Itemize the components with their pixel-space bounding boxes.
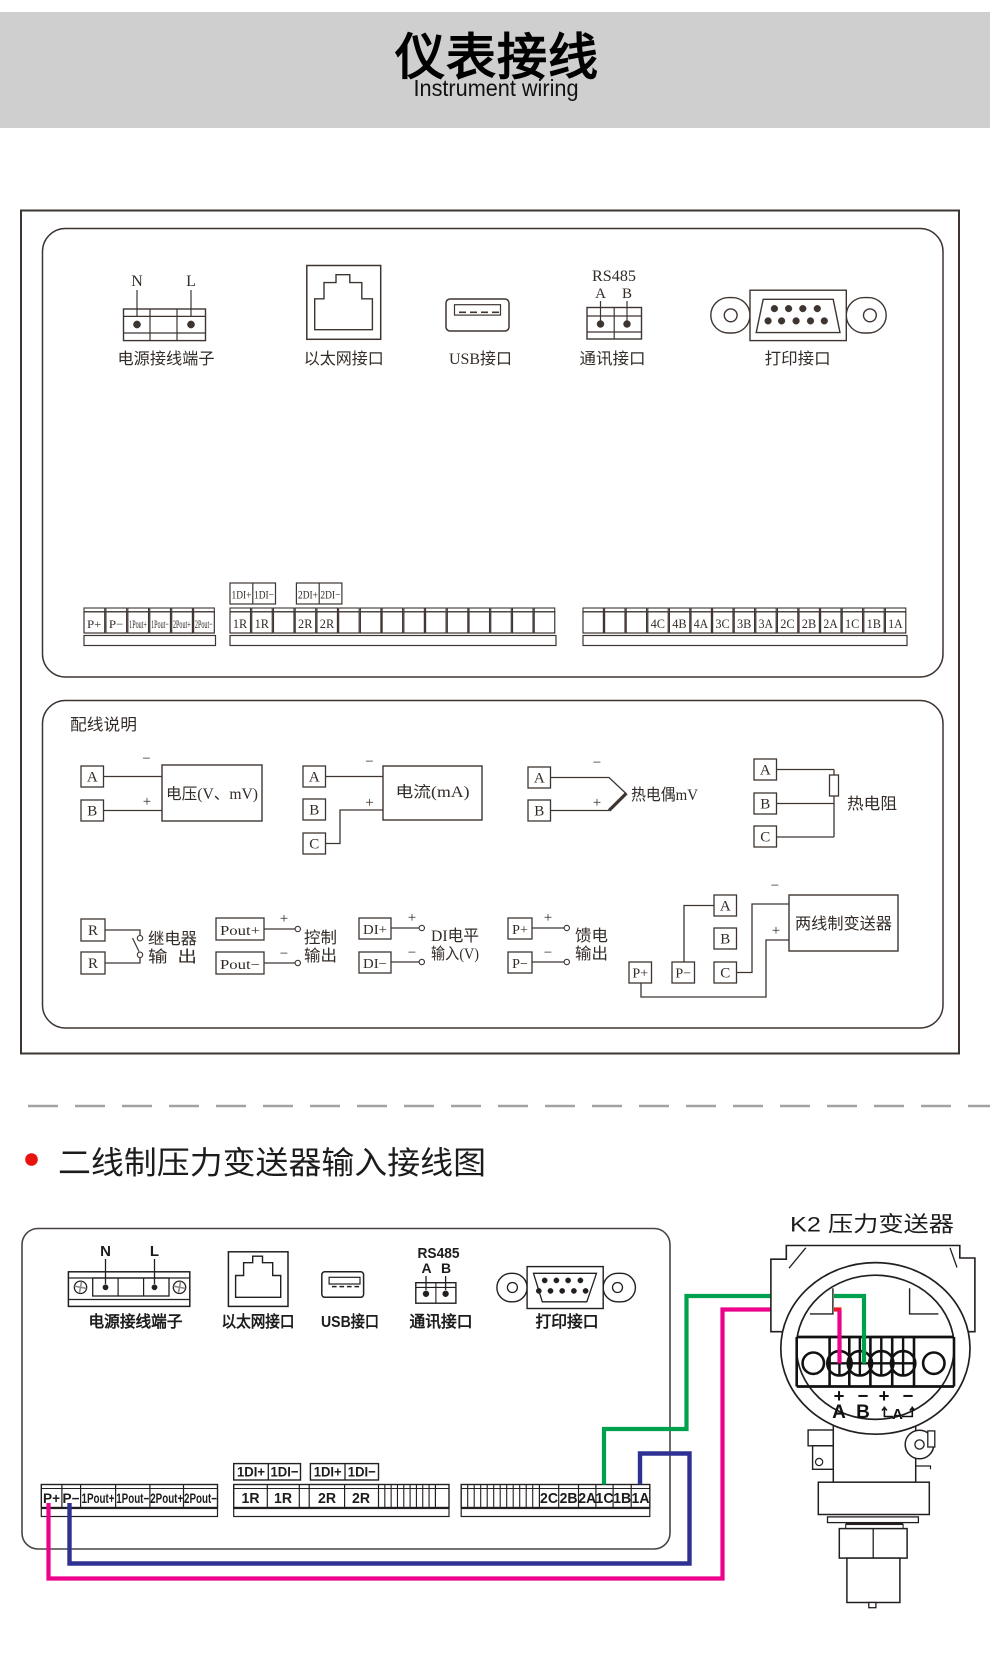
svg-text:以太网接口: 以太网接口 [304,350,384,368]
svg-text:C: C [309,837,319,853]
svg-text:1DI+: 1DI+ [237,1464,265,1480]
svg-text:DI+: DI+ [363,923,387,938]
svg-text:B: B [87,804,97,820]
svg-text:R: R [88,956,98,972]
svg-text:USB接口: USB接口 [321,1312,379,1331]
svg-text:输入(V): 输入(V) [431,945,479,963]
svg-text:4B: 4B [672,617,686,631]
svg-text:P−: P− [109,617,124,631]
svg-text:A: A [760,763,771,779]
svg-text:−: − [544,945,552,961]
svg-text:2Pout−: 2Pout− [195,617,213,631]
svg-text:热电阻: 热电阻 [847,795,897,813]
svg-text:DI−: DI− [363,957,387,972]
svg-text:DI电平: DI电平 [431,927,479,945]
svg-text:+: + [408,910,416,926]
svg-text:1Pout+: 1Pout+ [129,617,147,631]
svg-text:以太网接口: 以太网接口 [222,1312,295,1331]
svg-text:控制: 控制 [304,929,337,947]
svg-text:C: C [720,966,730,982]
svg-text:3C: 3C [715,617,729,631]
svg-text:电源接线端子: 电源接线端子 [118,350,215,368]
svg-text:1DI−: 1DI− [348,1464,376,1480]
svg-text:1A: 1A [632,1490,650,1507]
svg-text:1DI+: 1DI+ [232,590,252,602]
svg-text:B: B [309,803,319,819]
svg-text:−: − [280,946,288,962]
svg-text:电源接线端子: 电源接线端子 [89,1312,183,1331]
svg-text:B: B [534,804,544,820]
svg-text:通讯接口: 通讯接口 [410,1312,473,1331]
svg-text:1C: 1C [845,617,859,631]
svg-text:−: − [142,751,150,767]
svg-text:2R: 2R [318,1490,336,1507]
svg-text:−: − [365,754,373,770]
svg-text:热电偶mV: 热电偶mV [631,786,698,804]
svg-text:2R: 2R [320,617,335,631]
svg-text:P+: P+ [87,617,102,631]
svg-text:2Pout+: 2Pout+ [150,1491,183,1506]
svg-text:2B: 2B [802,617,816,631]
svg-text:电流(mA): 电流(mA) [396,783,470,801]
svg-text:+: + [365,795,373,811]
svg-text:B: B [760,797,770,813]
svg-text:N: N [131,273,143,290]
svg-text:A: A [87,770,98,786]
svg-text:−: − [903,1385,914,1406]
svg-text:P−: P− [675,967,691,982]
svg-text:1Pout+: 1Pout+ [82,1491,115,1506]
svg-text:P−: P− [512,957,528,972]
svg-text:R: R [88,923,98,939]
svg-text:−: − [408,945,416,961]
svg-text:2C: 2C [780,617,794,631]
svg-text:1B: 1B [613,1490,631,1507]
svg-text:K2 压力变送器: K2 压力变送器 [790,1213,954,1237]
svg-text:1DI−: 1DI− [271,1464,299,1480]
svg-text:4C: 4C [651,617,665,631]
svg-text:+: + [143,794,151,810]
svg-text:+: + [593,795,601,811]
svg-text:3A: 3A [759,617,773,631]
svg-text:2DI−: 2DI− [320,590,340,602]
svg-text:1R: 1R [274,1490,292,1507]
svg-text:输出: 输出 [575,945,608,963]
svg-text:C: C [760,830,770,846]
svg-text:2DI+: 2DI+ [298,590,318,602]
svg-text:继电器: 继电器 [148,930,197,948]
svg-text:+: + [772,923,780,939]
svg-text:2R: 2R [352,1490,370,1507]
svg-text:P+: P+ [632,967,648,982]
svg-text:两线制变送器: 两线制变送器 [795,915,892,933]
svg-text:B: B [856,1402,870,1423]
svg-text:2R: 2R [298,617,313,631]
svg-text:L: L [150,1243,159,1260]
svg-text:1C: 1C [596,1490,614,1507]
svg-text:1B: 1B [867,617,881,631]
svg-text:2Pout+: 2Pout+ [173,617,191,631]
svg-text:B: B [622,286,632,302]
svg-text:馈电: 馈电 [575,927,608,945]
svg-text:电压(V、mV): 电压(V、mV) [166,785,258,803]
svg-text:2B: 2B [560,1490,578,1507]
svg-text:A: A [832,1402,846,1423]
svg-text:RS485: RS485 [592,268,636,285]
svg-text:A: A [892,1406,903,1423]
svg-text:−: − [771,878,779,894]
svg-text:2Pout−: 2Pout− [184,1491,217,1506]
svg-text:1DI−: 1DI− [254,590,274,602]
svg-text:A: A [534,771,545,787]
svg-text:A: A [309,770,320,786]
svg-text:+: + [879,1385,890,1406]
svg-text:USB接口: USB接口 [449,350,512,368]
svg-text:1A: 1A [888,617,902,631]
svg-text:+: + [280,911,288,927]
svg-text:A: A [720,899,731,915]
svg-text:通讯接口: 通讯接口 [580,350,646,368]
svg-text:二线制压力变送器输入接线图: 二线制压力变送器输入接线图 [58,1145,486,1181]
svg-text:N: N [100,1243,111,1260]
svg-text:B: B [441,1260,451,1276]
svg-text:1R: 1R [233,617,248,631]
svg-text:1R: 1R [242,1490,260,1507]
svg-text:输出: 输出 [304,947,337,965]
svg-text:1R: 1R [255,617,270,631]
svg-text:P+: P+ [43,1491,60,1506]
svg-text:1Pout−: 1Pout− [116,1491,149,1506]
svg-text:4A: 4A [694,617,708,631]
svg-text:Pout+: Pout+ [220,924,260,939]
svg-text:2A: 2A [823,617,837,631]
svg-text:2C: 2C [540,1490,558,1507]
svg-text:B: B [720,932,730,948]
svg-text:打印接口: 打印接口 [536,1312,599,1331]
svg-text:输 出: 输 出 [148,948,197,966]
svg-text:2A: 2A [578,1490,596,1507]
svg-text:A: A [595,286,606,302]
svg-text:−: − [593,755,601,771]
svg-text:Pout−: Pout− [220,958,260,973]
svg-text:3B: 3B [737,617,751,631]
svg-text:L: L [186,273,196,290]
svg-text:P+: P+ [512,923,528,938]
svg-text:1Pout−: 1Pout− [151,617,169,631]
svg-text:1DI+: 1DI+ [314,1464,342,1480]
svg-text:+: + [544,910,552,926]
svg-text:打印接口: 打印接口 [765,350,831,368]
svg-text:配线说明: 配线说明 [70,716,137,734]
svg-text:A: A [421,1260,431,1276]
svg-text:Instrument wiring: Instrument wiring [414,75,579,101]
